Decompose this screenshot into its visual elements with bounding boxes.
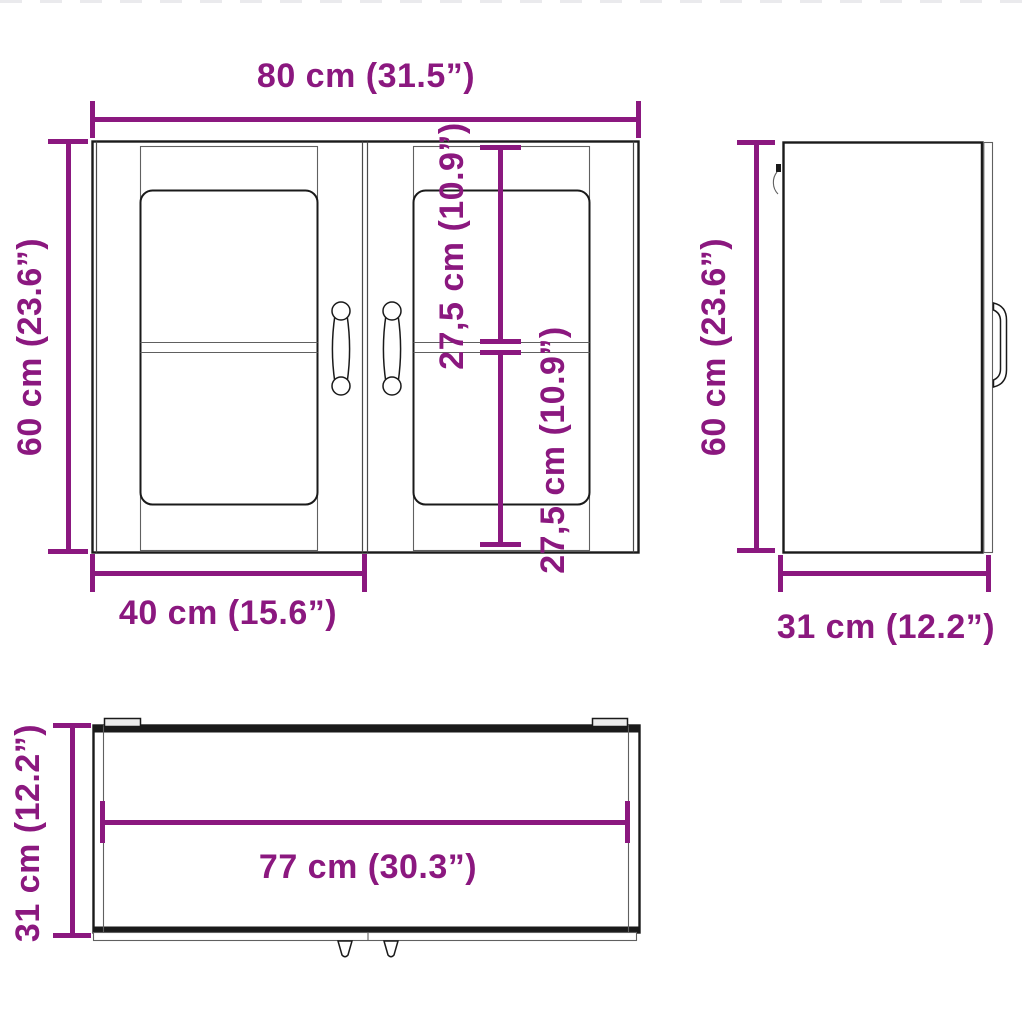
- top-depth-tick-bottom: [53, 933, 91, 938]
- front-width-label: 80 cm (31.5”): [166, 54, 566, 98]
- side-door-panel: [984, 143, 993, 553]
- top-depth-tick-top: [53, 723, 91, 728]
- front-height-dim-line: [66, 141, 71, 553]
- front-door-width-label: 40 cm (15.6”): [58, 591, 398, 635]
- top-front-edge: [94, 927, 640, 933]
- top-left-handle: [338, 941, 352, 957]
- top-depth-dim-line: [70, 725, 75, 938]
- front-lower-compartment-tick-bottom: [480, 542, 521, 547]
- front-door-width-dim-line: [92, 571, 365, 576]
- top-left-mount-bracket: [105, 719, 141, 727]
- front-upper-compartment-dim-line: [498, 147, 503, 342]
- side-wall-bracket: [773, 164, 781, 194]
- top-carcass-outline: [94, 726, 640, 933]
- front-right-door-handle: [383, 302, 401, 395]
- top-right-handle: [384, 941, 398, 957]
- front-lower-compartment-label: 27,5 cm (10.9”): [531, 300, 575, 600]
- side-height-label: 60 cm (23.6”): [692, 197, 736, 497]
- front-door-width-tick-right: [362, 554, 367, 592]
- front-upper-compartment-label: 27,5 cm (10.9”): [430, 96, 474, 396]
- front-door-width-tick-left: [90, 554, 95, 592]
- top-back-edge: [94, 726, 640, 733]
- front-upper-compartment-tick-top: [480, 145, 521, 150]
- front-width-dim-tick-left: [90, 101, 95, 138]
- front-left-door-handle: [332, 302, 350, 395]
- front-upper-compartment-tick-bottom: [480, 339, 521, 344]
- side-height-tick-bottom: [737, 548, 775, 553]
- top-inner-width-tick-right: [625, 801, 630, 843]
- side-depth-dim-line: [780, 571, 989, 576]
- front-width-dim-tick-right: [636, 101, 641, 138]
- side-door-handle: [994, 303, 1007, 387]
- top-door-strip: [94, 933, 637, 941]
- side-height-dim-line: [754, 142, 759, 553]
- side-height-tick-top: [737, 140, 775, 145]
- top-inner-width-tick-left: [100, 801, 105, 843]
- side-view-drawing: [773, 143, 1006, 553]
- front-height-dim-tick-top: [48, 139, 88, 144]
- side-carcass-outline: [784, 143, 983, 553]
- top-inner-width-dim-line: [102, 820, 628, 825]
- top-right-mount-bracket: [593, 719, 628, 727]
- front-width-dim-line: [92, 117, 639, 122]
- front-height-dim-tick-bottom: [48, 549, 88, 554]
- top-inner-width-label: 77 cm (30.3”): [188, 845, 548, 889]
- front-height-label: 60 cm (23.6”): [8, 197, 52, 497]
- front-lower-compartment-dim-line: [498, 352, 503, 545]
- side-depth-tick-left: [778, 555, 783, 592]
- dimension-diagram: 80 cm (31.5”) 60 cm (23.6”) 27,5 cm (10.…: [0, 0, 1024, 1024]
- front-left-door-glass: [141, 191, 318, 505]
- side-depth-label: 31 cm (12.2”): [716, 605, 1024, 649]
- side-depth-tick-right: [986, 555, 991, 592]
- top-view-drawing: [94, 719, 640, 957]
- front-lower-compartment-tick-top: [480, 350, 521, 355]
- top-depth-label: 31 cm (12.2”): [6, 683, 50, 983]
